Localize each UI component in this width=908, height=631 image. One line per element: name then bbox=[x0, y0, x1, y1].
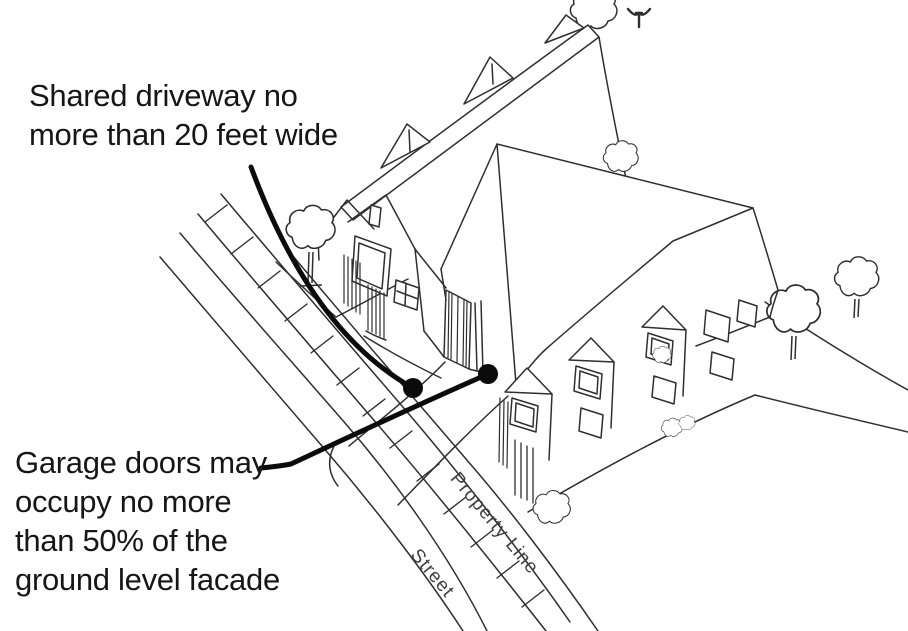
trees-right bbox=[767, 257, 879, 360]
bay-gable bbox=[642, 306, 686, 330]
tree bbox=[286, 205, 335, 248]
far-gable-right-slope bbox=[753, 208, 778, 290]
tree-left bbox=[286, 205, 335, 286]
map-labels: Property Line Street bbox=[406, 468, 543, 601]
big-gable-left-slope bbox=[441, 144, 497, 269]
annotation-shared-driveway: Shared driveway no more than 20 feet wid… bbox=[29, 76, 338, 154]
driveway-left-edge bbox=[349, 362, 445, 446]
attic-window bbox=[369, 205, 381, 227]
window bbox=[710, 352, 734, 380]
bay-wall-edge bbox=[549, 394, 552, 460]
tree-trunk bbox=[854, 299, 859, 318]
front-house-group bbox=[441, 144, 778, 512]
bay-wall-edge bbox=[611, 362, 614, 428]
bay-shadow-hatch bbox=[499, 398, 508, 468]
annotation-garage-doors: Garage doors may occupy no more than 50%… bbox=[15, 443, 280, 599]
window bbox=[652, 376, 676, 404]
bush bbox=[661, 418, 682, 436]
annotation-line: occupy no more bbox=[15, 482, 280, 521]
bay-gable bbox=[569, 338, 614, 362]
window bbox=[579, 408, 603, 438]
roof-dormer bbox=[409, 130, 410, 152]
garage-doors-dot bbox=[478, 364, 498, 384]
annotation-line: ground level facade bbox=[15, 560, 280, 599]
zoning-diagram: Property Line Street Shared driveway no … bbox=[0, 0, 908, 631]
annotation-line: than 50% of the bbox=[15, 521, 280, 560]
roof-dormer bbox=[492, 64, 493, 84]
bay-porch-posts bbox=[515, 440, 533, 503]
annotation-line: Garage doors may bbox=[15, 443, 280, 482]
tree bbox=[767, 285, 820, 332]
front-roof-plane bbox=[497, 144, 753, 384]
street-label: Street bbox=[406, 545, 459, 602]
garage-base-edge bbox=[424, 331, 444, 357]
shared-driveway-dot bbox=[403, 378, 423, 398]
window bbox=[737, 300, 757, 327]
tree-trunk bbox=[308, 252, 313, 284]
bush bbox=[679, 415, 695, 429]
annotation-line: more than 20 feet wide bbox=[29, 115, 338, 154]
bush bbox=[603, 141, 638, 172]
tree-trunk bbox=[791, 336, 796, 360]
bay-wall-edge bbox=[683, 330, 686, 396]
garage-corner-posts bbox=[475, 301, 483, 373]
tree bbox=[835, 257, 879, 296]
house-base-line bbox=[364, 336, 441, 378]
bay-gable bbox=[505, 368, 552, 394]
rear-lot-line bbox=[755, 395, 908, 432]
window bbox=[704, 310, 730, 342]
annotation-line: Shared driveway no bbox=[29, 76, 338, 115]
big-gable-wall-edge bbox=[441, 269, 446, 300]
weathervane-icon bbox=[628, 9, 650, 27]
bush bbox=[533, 490, 570, 523]
